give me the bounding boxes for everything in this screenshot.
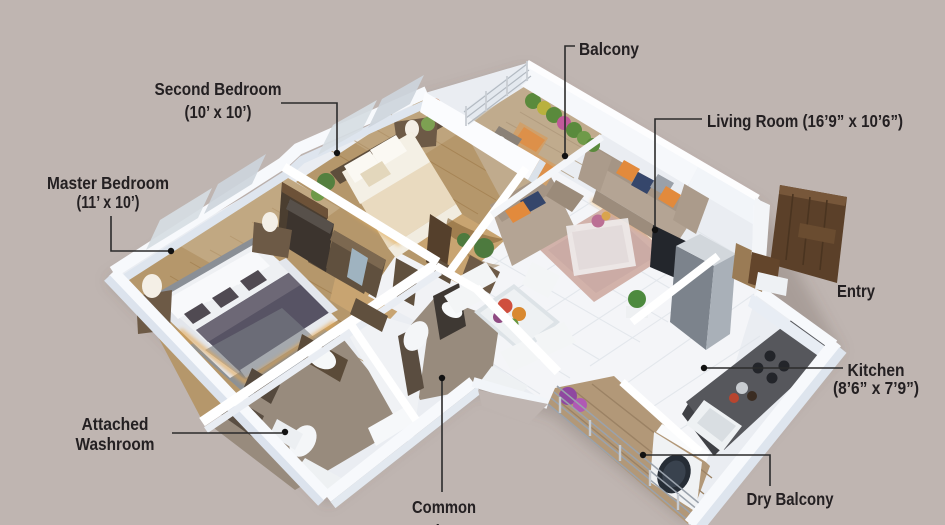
svg-text:Common: Common bbox=[412, 497, 476, 517]
svg-text:(8’6” x 7’9”): (8’6” x 7’9”) bbox=[833, 378, 919, 398]
svg-text:Attached: Attached bbox=[82, 414, 149, 434]
svg-text:Master Bedroom: Master Bedroom bbox=[47, 173, 169, 193]
svg-text:Washroom: Washroom bbox=[76, 434, 155, 454]
svg-text:Living Room (16’9” x 10’6”): Living Room (16’9” x 10’6”) bbox=[707, 111, 903, 131]
svg-text:(10’ x 10’): (10’ x 10’) bbox=[185, 102, 252, 122]
svg-text:Entry: Entry bbox=[837, 281, 875, 301]
svg-text:Kitchen: Kitchen bbox=[848, 360, 905, 380]
svg-text:(11’ x 10’): (11’ x 10’) bbox=[77, 192, 140, 212]
svg-text:Second Bedroom: Second Bedroom bbox=[155, 79, 282, 99]
svg-text:Balcony: Balcony bbox=[579, 39, 639, 59]
svg-text:Washroom: Washroom bbox=[405, 521, 484, 525]
svg-text:Dry Balcony: Dry Balcony bbox=[747, 489, 834, 509]
